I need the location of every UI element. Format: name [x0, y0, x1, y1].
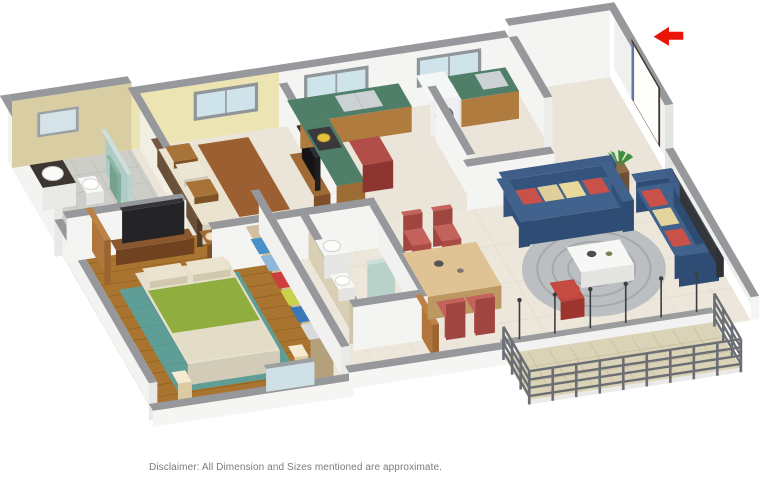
- sofa-arm: [623, 200, 634, 232]
- floorplan-3d-render: [0, 0, 780, 490]
- bathroom1-sink: [42, 167, 63, 181]
- pouf: [561, 298, 585, 320]
- pouf-top: [554, 281, 580, 298]
- bathroom2-toilet-seat: [335, 276, 349, 286]
- balcony-glass-posts: [517, 298, 521, 302]
- entrance-arrow: [654, 27, 684, 46]
- dining-chair: [446, 301, 465, 340]
- balcony-glass-posts: [553, 292, 557, 296]
- table-decor: [434, 260, 444, 266]
- balcony-glass-posts: [588, 287, 592, 291]
- dining-chair: [475, 297, 494, 336]
- disclaimer-text: Disclaimer: All Dimension and Sizes ment…: [149, 462, 442, 473]
- wall-living-east: [751, 296, 759, 320]
- wall-utility-foyer: [544, 97, 552, 154]
- floorplan-image: Disclaimer: All Dimension and Sizes ment…: [0, 0, 780, 490]
- bedroom2-tv: [315, 157, 321, 191]
- bathroom1-door: [104, 240, 110, 285]
- bathroom2-toilet: [339, 287, 356, 302]
- balcony-glass-posts: [624, 282, 628, 286]
- table-decor: [457, 268, 464, 272]
- entrance-wall: [665, 104, 673, 172]
- entrance-door-edge: [632, 42, 635, 103]
- kitchen-red-seat: [363, 161, 393, 193]
- bedroom2-window-mullion: [225, 90, 227, 113]
- bathroom1-towel: [117, 174, 121, 208]
- bathroom2-sink: [323, 240, 340, 251]
- table-decor: [606, 252, 613, 256]
- table-decor: [587, 251, 597, 257]
- balcony-glass-posts: [694, 271, 698, 275]
- kitchen-pan: [318, 134, 330, 142]
- bathroom1-toilet-seat: [82, 179, 98, 190]
- balcony-glass-posts: [659, 276, 663, 280]
